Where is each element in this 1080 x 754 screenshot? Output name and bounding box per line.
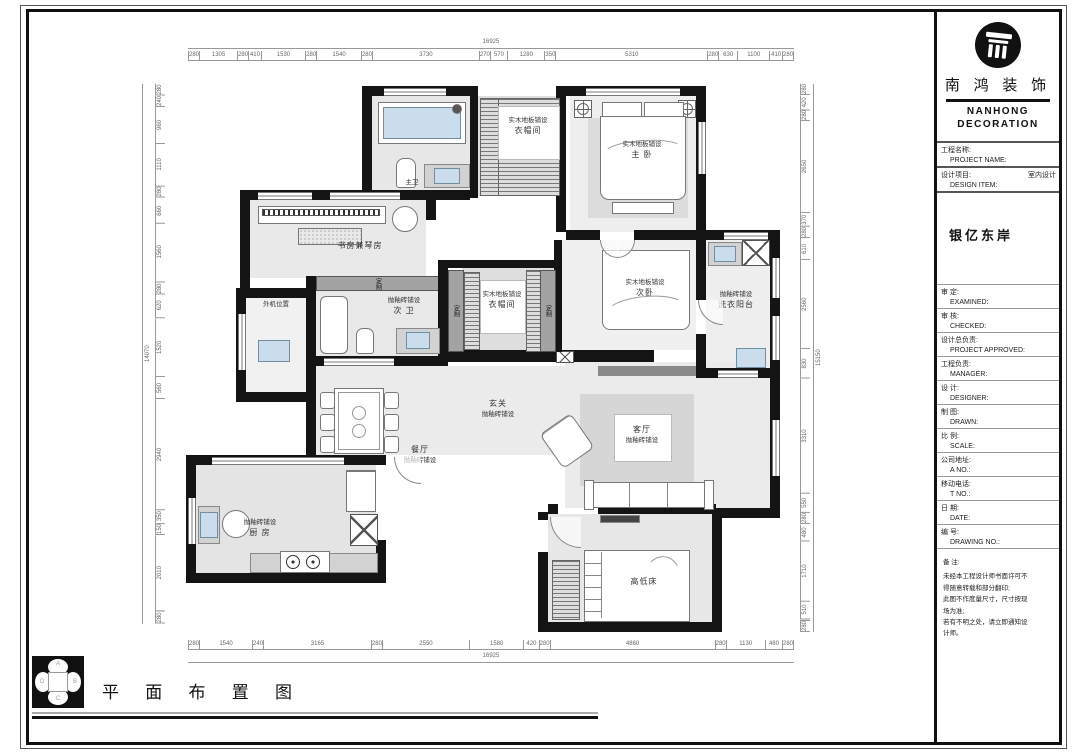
room-name: 主 卧: [592, 149, 692, 161]
dim-value: 480: [800, 524, 810, 541]
field-designer: 设 计: DESIGNER:: [937, 381, 1059, 405]
sofa: [590, 482, 708, 508]
floorplan-sheet: 16925 2801305280410153028015402803730270…: [0, 0, 1080, 754]
frow-en: A NO.:: [941, 467, 1056, 474]
field-examined: 审 定: EXAMINED:: [937, 285, 1059, 309]
dim-value: 1540: [316, 51, 361, 61]
plate: [352, 406, 366, 420]
material-label: 实木地板铺设: [592, 140, 692, 149]
title-underline: [32, 716, 598, 719]
dim-value: 1560: [155, 223, 165, 283]
dim-value: 280: [305, 51, 316, 61]
shape: 此图不作度量尺寸，尺寸按现: [943, 594, 1053, 605]
room-label-kitchen: 抛釉砖铺设厨 房: [228, 518, 292, 539]
shape: [995, 45, 1000, 58]
room-label-study: 书房兼琴房: [310, 240, 410, 252]
frow-cn: 审 定:: [941, 287, 1056, 297]
dim-value: 1305: [199, 51, 237, 61]
round-stool: [392, 206, 418, 232]
dim-value: 1540: [199, 640, 252, 650]
frow-cn: 移动电话:: [941, 479, 1056, 489]
dim-value: 350: [155, 510, 165, 524]
shape: 审 核:: [941, 311, 959, 321]
wall: [538, 512, 548, 520]
field-project-approved: 设计总负责: PROJECT APPROVED:: [937, 333, 1059, 357]
dim-value: 550: [800, 493, 810, 513]
room-label-master: 实木地板铺设主 卧: [592, 140, 692, 161]
tv-console: [598, 366, 696, 376]
room-label-living: 客厅抛釉砖铺设: [612, 424, 672, 445]
ac-outdoor-unit: [258, 340, 290, 362]
dimension-row-top: 2801305280410153028015402803730270570128…: [188, 51, 794, 61]
dim-value: 4860: [550, 640, 715, 650]
custom-cabinet: 定制: [540, 270, 556, 352]
wall: [362, 86, 372, 198]
dim-value: 420: [523, 640, 538, 650]
dim-value: 1100: [737, 51, 769, 61]
dim-value: 280: [800, 84, 810, 95]
room-name: 次 卫: [372, 305, 436, 317]
shape: DECORATION: [937, 118, 1059, 131]
dim-value: 270: [479, 51, 490, 61]
material-label: 抛釉砖铺设: [466, 410, 530, 419]
wall: [712, 512, 722, 632]
frow-cn: 设 计:: [941, 383, 1056, 393]
wardrobe: [498, 158, 560, 196]
shape: 工程负责:: [941, 359, 971, 369]
wall: [538, 552, 548, 632]
room-name: 餐厅: [390, 444, 450, 456]
room-name: 次卧: [612, 287, 678, 299]
sink: [714, 246, 736, 262]
wall: [236, 392, 316, 402]
room-label-outdoor-unit: 外机位置: [248, 300, 304, 309]
room-name: 厨 房: [228, 527, 292, 539]
plate: [352, 424, 366, 438]
cabinet-x: [742, 240, 770, 266]
frow-cn: 比 例:: [941, 431, 1056, 441]
field-drawn: 制 图: DRAWN:: [937, 405, 1059, 429]
brand-rule: [946, 99, 1050, 102]
wall: [236, 288, 316, 298]
dim-value: 280: [782, 51, 794, 61]
window: [384, 88, 446, 96]
dim-value: 280: [539, 640, 550, 650]
dim-value: 620: [155, 294, 165, 318]
frow-en: DESIGN ITEM:: [941, 182, 1056, 189]
frow-en: EXAMINED:: [941, 299, 1056, 306]
shape: [988, 39, 1008, 44]
window: [330, 192, 400, 200]
dim-value: 570: [490, 51, 507, 61]
wall: [306, 392, 316, 464]
wall: [306, 276, 316, 290]
room-name: 衣帽间: [470, 299, 534, 311]
room-label-master-bath: 主卫: [398, 178, 426, 187]
dim-value: 630: [718, 51, 737, 61]
shape: 定制: [452, 305, 461, 317]
dim-value: 1110: [155, 144, 165, 187]
custom-cabinet: 定制: [448, 270, 464, 352]
dimension-row-bottom: 2801540240316528025501580420280486028011…: [188, 640, 794, 650]
room-label-bed2: 实木地板铺设次卧: [612, 278, 678, 299]
dim-value: 1530: [261, 51, 305, 61]
bunk-ladder: [585, 552, 602, 618]
window: [772, 258, 780, 298]
frow-en: PROJECT APPROVED:: [941, 347, 1056, 354]
room-name: 书房兼琴房: [310, 240, 410, 252]
dim-value: 280: [800, 620, 810, 632]
dim-total-left: 14070: [142, 84, 153, 624]
frow-cn: 制 图:: [941, 407, 1056, 417]
field-date: 日 期: DATE:: [937, 501, 1059, 525]
shape: 公司地址:: [941, 455, 971, 465]
sofa-armrest: [704, 480, 714, 510]
wardrobe: [480, 98, 500, 196]
toilet: [356, 328, 374, 354]
wall: [538, 622, 722, 632]
title-block: 南 鸿 装 饰 NANHONG DECORATION 工程名称: PROJECT…: [934, 12, 1059, 742]
frow-en: DRAWING NO.:: [941, 539, 1056, 546]
field-phone: 移动电话: T NO.:: [937, 477, 1059, 501]
wall: [426, 190, 436, 220]
column-box: [556, 351, 574, 363]
ceiling-light-icon: [574, 100, 592, 118]
dim-value: 280: [707, 51, 718, 61]
room-label-cloakroom-2: 实木地板铺设衣帽间: [470, 290, 534, 311]
window: [718, 370, 758, 378]
shape: 审 定:: [941, 287, 959, 297]
shower-head: [452, 104, 462, 114]
material-label: 实木地板铺设: [612, 278, 678, 287]
shape: [1002, 46, 1007, 59]
window: [324, 358, 394, 366]
fridge: [346, 470, 376, 512]
window: [212, 457, 344, 465]
shape: 设计总负责:: [941, 335, 978, 345]
dim-value: 280: [188, 51, 199, 61]
frow-en: PROJECT NAME:: [941, 157, 1056, 164]
tv-console: [600, 515, 640, 523]
stove-burner: [306, 555, 320, 569]
shape: 若有不明之处，请立即通知设: [943, 617, 1053, 628]
dim-value: 280: [155, 186, 165, 198]
room-label-entry: 玄关抛釉砖铺设: [466, 398, 530, 419]
dim-value: 960: [155, 107, 165, 144]
wall: [186, 573, 386, 583]
wall: [566, 230, 600, 240]
dim-value: 280: [188, 640, 199, 650]
frow-en: DATE:: [941, 515, 1056, 522]
field-drawing-no: 编 号: DRAWING NO.:: [937, 525, 1059, 549]
dim-value: 280: [800, 110, 810, 121]
chair: [320, 436, 335, 453]
dim-value: 370: [800, 213, 810, 227]
nanhong-logo-icon: [973, 20, 1024, 71]
dim-value: 410: [248, 51, 261, 61]
field-design-item: 设计项目:室内设计 DESIGN ITEM:: [937, 168, 1059, 193]
window: [258, 192, 312, 200]
sofa-armrest: [584, 480, 594, 510]
frow-en: CHECKED:: [941, 323, 1056, 330]
title-underline: [32, 712, 598, 714]
wall: [716, 508, 780, 518]
dim-value: 510: [800, 601, 810, 620]
material-label: 实木地板铺设: [470, 290, 534, 299]
dim-value: 2650: [800, 121, 810, 213]
dim-value: 1580: [469, 640, 523, 650]
frow-en: DRAWN:: [941, 419, 1056, 426]
shape: 设 计:: [941, 383, 959, 393]
window: [772, 316, 780, 360]
bathtub-water: [383, 107, 461, 139]
fval: 室内设计: [1028, 170, 1056, 180]
dim-total-top: 16925: [188, 38, 794, 49]
dim-value: 3730: [372, 51, 479, 61]
dim-value: 3310: [800, 379, 810, 494]
wall: [470, 86, 478, 198]
dim-value: 280: [155, 84, 165, 96]
wall: [548, 504, 558, 514]
dim-total-right: 15150: [813, 84, 824, 632]
stove-burner: [286, 555, 300, 569]
dim-value: 660: [155, 198, 165, 224]
dim-value: 2940: [155, 399, 165, 510]
room-name: 高低床: [614, 576, 674, 588]
dim-value: 280: [782, 640, 794, 650]
room-label-bath2: 抛釉砖铺设次 卫: [372, 296, 436, 317]
dim-total-bottom: 16925: [188, 652, 794, 663]
frow-cn: 公司地址:: [941, 455, 1056, 465]
project-name: 银亿东岸: [937, 193, 1059, 285]
frow-cn: 日 期:: [941, 503, 1056, 513]
window: [698, 122, 706, 174]
dim-value: 280: [715, 640, 726, 650]
chair: [320, 392, 335, 409]
window: [586, 88, 680, 96]
dim-value: 420: [800, 95, 810, 110]
frow-en: SCALE:: [941, 443, 1056, 450]
material-label: 抛釉砖铺设: [228, 518, 292, 527]
wall: [438, 260, 562, 268]
room-label-cloakroom-1: 实木地板铺设衣帽间: [496, 116, 560, 137]
chair: [384, 392, 399, 409]
dim-value: 350: [544, 51, 555, 61]
brand-header: 南 鸿 装 饰 NANHONG DECORATION: [937, 12, 1059, 135]
shape: C: [56, 696, 60, 702]
dim-value: 2010: [155, 535, 165, 611]
dimension-col-left: 2802409601110280660156028062015205602940…: [155, 84, 165, 624]
dim-value: 5310: [555, 51, 707, 61]
dim-value: 150: [155, 524, 165, 535]
shape: 定制: [544, 305, 553, 317]
frow-cn: 编 号:: [941, 527, 1056, 537]
shape: 定制: [374, 278, 383, 290]
dimension-col-right: 2804202802650370280610256083033105502804…: [800, 84, 810, 632]
shape: 移动电话:: [941, 479, 971, 489]
sink: [406, 332, 430, 349]
shape: 计师。: [943, 628, 1053, 639]
shape: 制 图:: [941, 407, 959, 417]
sink: [434, 168, 460, 184]
plan-title: 平 面 布 置 图: [102, 678, 303, 703]
custom-cabinet-study: 定制: [316, 276, 440, 291]
dim-value: 560: [155, 377, 165, 399]
material-label: 抛釉砖铺设: [372, 296, 436, 305]
dim-value: 280: [800, 227, 810, 238]
dim-value: 1130: [726, 640, 765, 650]
dim-value: 2550: [382, 640, 469, 650]
shape: 比 例:: [941, 431, 959, 441]
brand-name-en: NANHONG DECORATION: [937, 105, 1059, 131]
bed-bench: [612, 202, 674, 214]
room-name: 玄关: [466, 398, 530, 410]
shape: [988, 44, 993, 57]
field-checked: 审 核: CHECKED:: [937, 309, 1059, 333]
window: [238, 314, 246, 370]
material-label: 实木地板铺设: [496, 116, 560, 125]
shape: A: [56, 661, 60, 667]
dim-value: 280: [237, 51, 248, 61]
dim-value: 280: [155, 283, 165, 295]
material-label: 抛釉砖铺设: [612, 436, 672, 445]
dim-value: 240: [155, 96, 165, 107]
frow-en: MANAGER:: [941, 371, 1056, 378]
shape: D: [40, 679, 44, 685]
shape: 日 期:: [941, 503, 959, 513]
dim-value: 2560: [800, 260, 810, 349]
north-compass-icon: A B C D: [32, 656, 84, 708]
dim-value: 1280: [507, 51, 544, 61]
dim-value: 1710: [800, 542, 810, 602]
brand-name-cn: 南 鸿 装 饰: [937, 74, 1059, 95]
material-label: 外机位置: [248, 300, 304, 309]
dim-value: 1520: [155, 319, 165, 377]
frow-cn: 审 核:: [941, 311, 1056, 321]
room-name: 客厅: [612, 424, 672, 436]
compass-center: [48, 672, 68, 692]
frow-en: T NO.:: [941, 491, 1056, 498]
dim-value: 240: [252, 640, 263, 650]
field-scale: 比 例: SCALE:: [937, 429, 1059, 453]
material-label: 抛釉砖铺设: [704, 290, 768, 299]
shape: 工程名称:: [941, 145, 971, 155]
notes-label: 备 注:: [943, 557, 1053, 568]
frow-cn: 设计项目:室内设计: [941, 170, 1056, 180]
wardrobe: [552, 560, 580, 620]
window: [724, 232, 768, 240]
frow-en: DESIGNER:: [941, 395, 1056, 402]
wall: [306, 288, 316, 402]
dim-value: 480: [765, 640, 782, 650]
shape: 未经本工程设计师书面许可不: [943, 571, 1053, 582]
dim-value: 610: [800, 238, 810, 260]
kitchen-sink: [200, 512, 218, 538]
dim-value: 830: [800, 349, 810, 379]
dim-value: 280: [155, 611, 165, 624]
field-project-name: 工程名称: PROJECT NAME:: [937, 143, 1059, 168]
frow-cn: 设计总负责:: [941, 335, 1056, 345]
dim-value: 280: [371, 640, 382, 650]
shape: 设计项目:: [941, 170, 971, 180]
shape: 编 号:: [941, 527, 959, 537]
dim-value: 410: [769, 51, 782, 61]
frow-cn: 工程名称:: [941, 145, 1056, 155]
field-address: 公司地址: A NO.:: [937, 453, 1059, 477]
piano-keys: [262, 209, 380, 216]
dining-table: [334, 388, 384, 454]
window: [188, 498, 196, 544]
chair: [384, 414, 399, 431]
field-manager: 工程负责: MANAGER:: [937, 357, 1059, 381]
material-label: 主卫: [398, 178, 426, 187]
washing-machine: [736, 348, 766, 368]
dim-value: 280: [800, 513, 810, 524]
shape: B: [73, 679, 77, 685]
title-block-fields: 工程名称: PROJECT NAME: 设计项目:室内设计 DESIGN ITE…: [937, 141, 1059, 742]
wall: [240, 190, 250, 296]
shape: 场为准;: [943, 606, 1053, 617]
room-label-bunk: 高低床: [614, 576, 674, 588]
shape: 得随意转载和部分翻印;: [943, 583, 1053, 594]
window: [772, 420, 780, 476]
bathtub: [320, 296, 348, 354]
frow-cn: 工程负责:: [941, 359, 1056, 369]
chair: [320, 414, 335, 431]
notes-block: 备 注: 未经本工程设计师书面许可不 得随意转载和部分翻印; 此图不作度量尺寸，…: [937, 549, 1059, 640]
dim-value: 3165: [263, 640, 371, 650]
dim-value: 280: [361, 51, 372, 61]
shape: NANHONG: [937, 105, 1059, 118]
room-name: 衣帽间: [496, 125, 560, 137]
pantry-cabinet: [350, 514, 378, 546]
